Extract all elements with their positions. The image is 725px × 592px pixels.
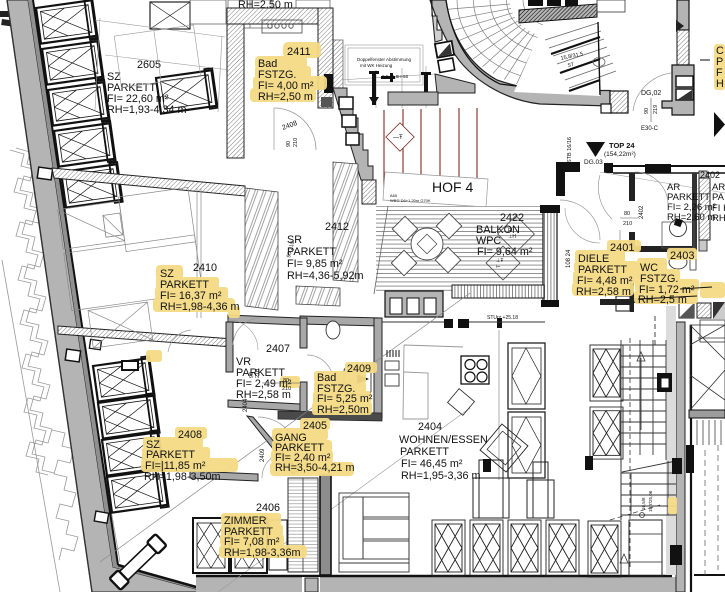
svg-text:WBG D6+1,20m G70K: WBG D6+1,20m G70K (390, 198, 431, 203)
svg-text:RH: RH (712, 213, 725, 224)
svg-text:⊢: ⊢ (496, 263, 500, 270)
svg-text:RH=4,36-5,92m: RH=4,36-5,92m (287, 270, 364, 282)
svg-text:RH=2,50 m: RH=2,50 m (258, 91, 313, 103)
svg-text:FI= 46,45 m²: FI= 46,45 m² (401, 458, 463, 470)
svg-text:2412: 2412 (325, 221, 349, 233)
svg-text:2409: 2409 (260, 448, 266, 462)
svg-text:RH=1,95-3,36 m: RH=1,95-3,36 m (401, 470, 481, 482)
svg-text:PARKETT: PARKETT (400, 446, 449, 458)
svg-text:80: 80 (624, 211, 630, 217)
svg-text:RH=1,98-3,50m: RH=1,98-3,50m (144, 471, 221, 483)
svg-text:STB 16/16: STB 16/16 (567, 137, 573, 163)
svg-text:2403: 2403 (670, 250, 694, 262)
svg-text:RH=1,98-4,36 m: RH=1,98-4,36 m (160, 301, 240, 313)
svg-text:108 24: 108 24 (566, 249, 572, 268)
svg-text:mit WK Heizung: mit WK Heizung (360, 63, 393, 68)
svg-text:2406: 2406 (256, 502, 280, 514)
svg-text:STUrz +25.18: STUrz +25.18 (487, 315, 518, 321)
svg-text:210: 210 (293, 138, 299, 147)
svg-text:FI= 9,85 m²: FI= 9,85 m² (287, 258, 343, 270)
svg-text:18,7/25,06: 18,7/25,06 (648, 490, 653, 512)
svg-text:(154,22m²): (154,22m²) (604, 151, 636, 158)
svg-text:RH=1,93-4,34 m: RH=1,93-4,34 m (107, 104, 187, 116)
svg-text:2404: 2404 (418, 421, 442, 433)
svg-text:TOP 24: TOP 24 (609, 141, 635, 150)
svg-text:2402: 2402 (639, 205, 645, 219)
svg-text:RH=2,58 m: RH=2,58 m (576, 286, 631, 298)
svg-text:RH=1,98-3,36m: RH=1,98-3,36m (224, 547, 301, 559)
svg-text:2422: 2422 (500, 212, 524, 224)
svg-text:2410: 2410 (193, 262, 217, 274)
svg-text:DG.03: DG.03 (584, 159, 603, 166)
svg-text:2405: 2405 (303, 420, 327, 432)
svg-text:RH=2,60 m: RH=2,60 m (667, 212, 715, 223)
svg-text:E30-C: E30-C (641, 126, 659, 132)
svg-text:2605: 2605 (137, 59, 161, 71)
svg-text:90: 90 (286, 141, 292, 147)
svg-text:DG,02: DG,02 (641, 90, 661, 97)
svg-text:210: 210 (623, 221, 632, 227)
svg-text:RH=2,5 m: RH=2,5 m (638, 294, 687, 306)
svg-text:2411: 2411 (287, 46, 311, 58)
svg-text:RH=3,50-4,21 m: RH=3,50-4,21 m (275, 462, 355, 474)
svg-text:2409: 2409 (347, 363, 371, 375)
svg-text:PA: PA (712, 192, 725, 203)
svg-text:—Ŧ: —Ŧ (393, 135, 403, 141)
svg-text:⊥H: ⊥H (508, 234, 516, 240)
svg-text:H: H (716, 78, 724, 90)
svg-text:2402: 2402 (700, 170, 720, 180)
svg-text:2408: 2408 (178, 429, 202, 441)
svg-text:90: 90 (644, 108, 650, 114)
svg-text:219: 219 (653, 105, 659, 114)
svg-text:16,5/8: 16,5/8 (641, 497, 646, 510)
svg-text:80: 80 (283, 378, 289, 384)
svg-text:WOHNEN/ESSEN: WOHNEN/ESSEN (399, 434, 488, 446)
svg-text:2407: 2407 (266, 343, 290, 355)
svg-text:210: 210 (282, 386, 291, 392)
svg-text:RH=2,50m: RH=2,50m (317, 404, 369, 416)
svg-text:2401: 2401 (610, 242, 634, 254)
svg-text:HOF 4: HOF 4 (432, 179, 473, 195)
svg-text:Doppelfenster Abstimmung: Doppelfenster Abstimmung (357, 57, 412, 62)
